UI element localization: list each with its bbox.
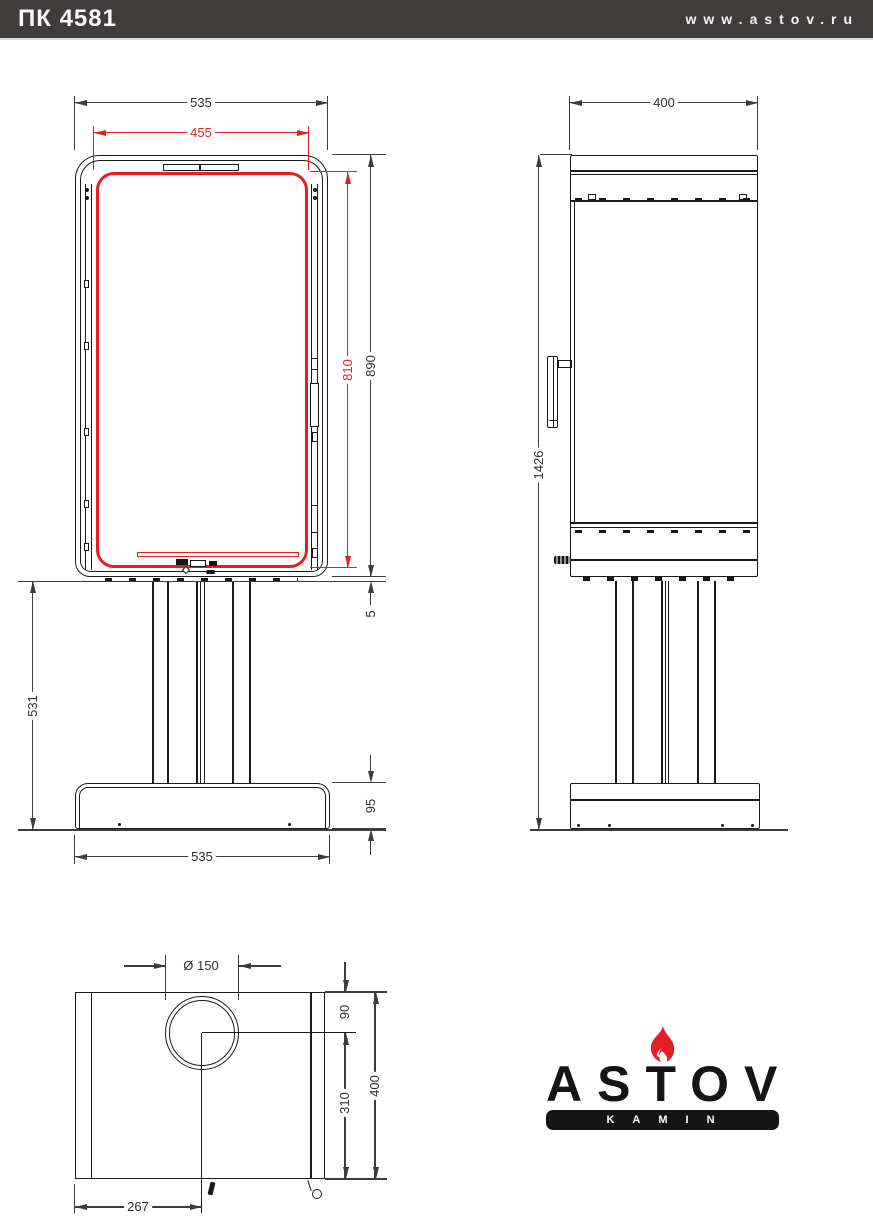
door-latch [176, 559, 188, 565]
arrowhead [368, 829, 374, 841]
door-frame-left [85, 184, 92, 570]
hinge-pin [85, 188, 89, 192]
latch-oval [206, 570, 215, 574]
dim-label: Ø 150 [180, 959, 221, 973]
arrowhead [368, 565, 374, 577]
pedestal-line [615, 581, 616, 783]
latch-detail [312, 548, 318, 558]
arrowhead [30, 818, 36, 830]
arrowhead [373, 1167, 379, 1179]
top-clip [739, 194, 747, 200]
hinge-detail [84, 342, 89, 350]
top-plate-line [570, 170, 758, 171]
arrowhead [373, 992, 379, 1004]
dim-label: 455 [187, 126, 215, 140]
base-side-line [570, 799, 760, 800]
dim-line [538, 155, 539, 830]
dim-line [370, 841, 371, 855]
glass-bottom-lip [137, 552, 299, 557]
arrowhead [30, 581, 36, 593]
arrowhead [536, 818, 542, 830]
door-latch [190, 560, 206, 567]
latch-detail [312, 432, 318, 442]
arrowhead [746, 100, 758, 106]
handle-cap-line [549, 420, 557, 421]
ext-line [332, 576, 386, 577]
arrowhead [94, 130, 106, 136]
pedestal-line [232, 582, 233, 783]
header-bar: ПК 4581 www.astov.ru [0, 0, 873, 38]
control-knob [554, 556, 570, 564]
handle-bracket [558, 360, 572, 368]
pedestal-line [697, 581, 698, 783]
brand-tagline-bar: KAMIN [546, 1110, 779, 1130]
arrowhead [368, 581, 374, 593]
base-side-outline [570, 783, 760, 829]
handle-knob-top [312, 1189, 322, 1199]
dim-label: 95 [364, 796, 378, 816]
arrowhead [536, 155, 542, 167]
dim-line [370, 755, 371, 772]
ash-lip-line [570, 559, 758, 560]
stove-body-side-outline [570, 155, 758, 577]
hinge-pin [313, 188, 317, 192]
panel-seam-left [91, 992, 92, 1179]
pedestal-line [152, 582, 153, 783]
dim-label: 531 [26, 692, 40, 720]
base-foot [608, 824, 611, 827]
dim-label: 890 [364, 352, 378, 380]
website-url: www.astov.ru [686, 0, 859, 38]
ext-line [165, 955, 166, 1000]
dim-label: 535 [188, 850, 216, 864]
drawing-canvas: ПК 4581 www.astov.ru 535 455 [0, 0, 873, 1221]
handle-inner-line [553, 357, 554, 427]
panel-seam-right [310, 992, 311, 1179]
arrowhead [75, 100, 87, 106]
base-foot [288, 823, 291, 826]
top-clip [588, 194, 596, 200]
arrowhead [343, 1167, 349, 1179]
ext-line [238, 955, 239, 1000]
control-knob-top [208, 1182, 216, 1196]
pedestal-line [668, 581, 669, 783]
pedestal-line [665, 581, 666, 783]
arrowhead [154, 963, 166, 969]
base-foot [721, 824, 724, 827]
hinge-pin [85, 196, 89, 200]
air-vent-slot [200, 164, 239, 171]
ext-line [310, 567, 357, 568]
arrowhead [343, 1033, 349, 1045]
floor-line [530, 829, 788, 830]
trim-ticks [575, 530, 753, 533]
ext-line [332, 154, 386, 155]
center-ref-line [201, 1033, 202, 1213]
base-foot [118, 823, 121, 826]
base-foot [577, 824, 580, 827]
air-vent-slot [163, 164, 200, 171]
brand-name: ASTOV [546, 1059, 792, 1109]
arrowhead [368, 155, 374, 167]
door-bottom-line [570, 522, 758, 523]
pedestal-line [632, 581, 633, 783]
hinge-pin [313, 196, 317, 200]
latch-detail [311, 505, 318, 533]
dim-label: 400 [650, 96, 678, 110]
arrowhead [75, 1204, 87, 1210]
dim-label: 267 [124, 1200, 152, 1214]
arrowhead [75, 854, 87, 860]
arrowhead [345, 556, 351, 568]
top-plate-line [570, 174, 758, 175]
dim-label: 310 [338, 1089, 352, 1117]
door-top-line [570, 200, 758, 201]
dim-label: 810 [341, 356, 355, 384]
pedestal-line [200, 582, 201, 783]
ext-line [332, 782, 386, 783]
hinge-detail [84, 543, 89, 551]
latch-plate [310, 383, 319, 427]
hearth-line [18, 581, 386, 582]
arrowhead [190, 1204, 202, 1210]
arrowhead [318, 854, 330, 860]
hinge-detail [84, 428, 89, 436]
pedestal-line [714, 581, 715, 783]
center-ref-line [202, 1032, 356, 1033]
brand-tagline: KAMIN [592, 1114, 732, 1126]
pedestal-line [661, 581, 662, 783]
arrowhead [345, 172, 351, 184]
model-title: ПК 4581 [18, 0, 117, 38]
dim-label: 400 [368, 1072, 382, 1100]
pedestal-line [167, 582, 168, 783]
pedestal-line [196, 582, 197, 783]
arrowhead [343, 980, 349, 992]
arrowhead [368, 771, 374, 783]
arrowhead [570, 100, 582, 106]
latch-detail [311, 358, 318, 370]
arrowhead [239, 963, 251, 969]
glass-opening-outline [96, 172, 308, 568]
hinge-detail [84, 280, 89, 288]
header-separator [0, 38, 873, 40]
pedestal-line [204, 582, 205, 783]
hinge-detail [84, 500, 89, 508]
dim-label: 1426 [532, 448, 546, 483]
door-latch [209, 561, 217, 566]
ext-line [310, 171, 357, 172]
ext-line [540, 154, 572, 155]
dim-line [370, 593, 371, 605]
arrowhead [297, 130, 309, 136]
base-foot [751, 824, 754, 827]
dim-label: 90 [338, 1002, 352, 1022]
handle-stem-top [307, 1180, 312, 1191]
ext-line [332, 828, 386, 829]
dim-label: 5 [364, 607, 378, 620]
arrowhead [316, 100, 328, 106]
pedestal-line [249, 582, 250, 783]
door-face-line [574, 200, 575, 523]
door-bottom-line [570, 527, 758, 528]
floor-line [18, 829, 386, 830]
dim-label: 535 [187, 96, 215, 110]
